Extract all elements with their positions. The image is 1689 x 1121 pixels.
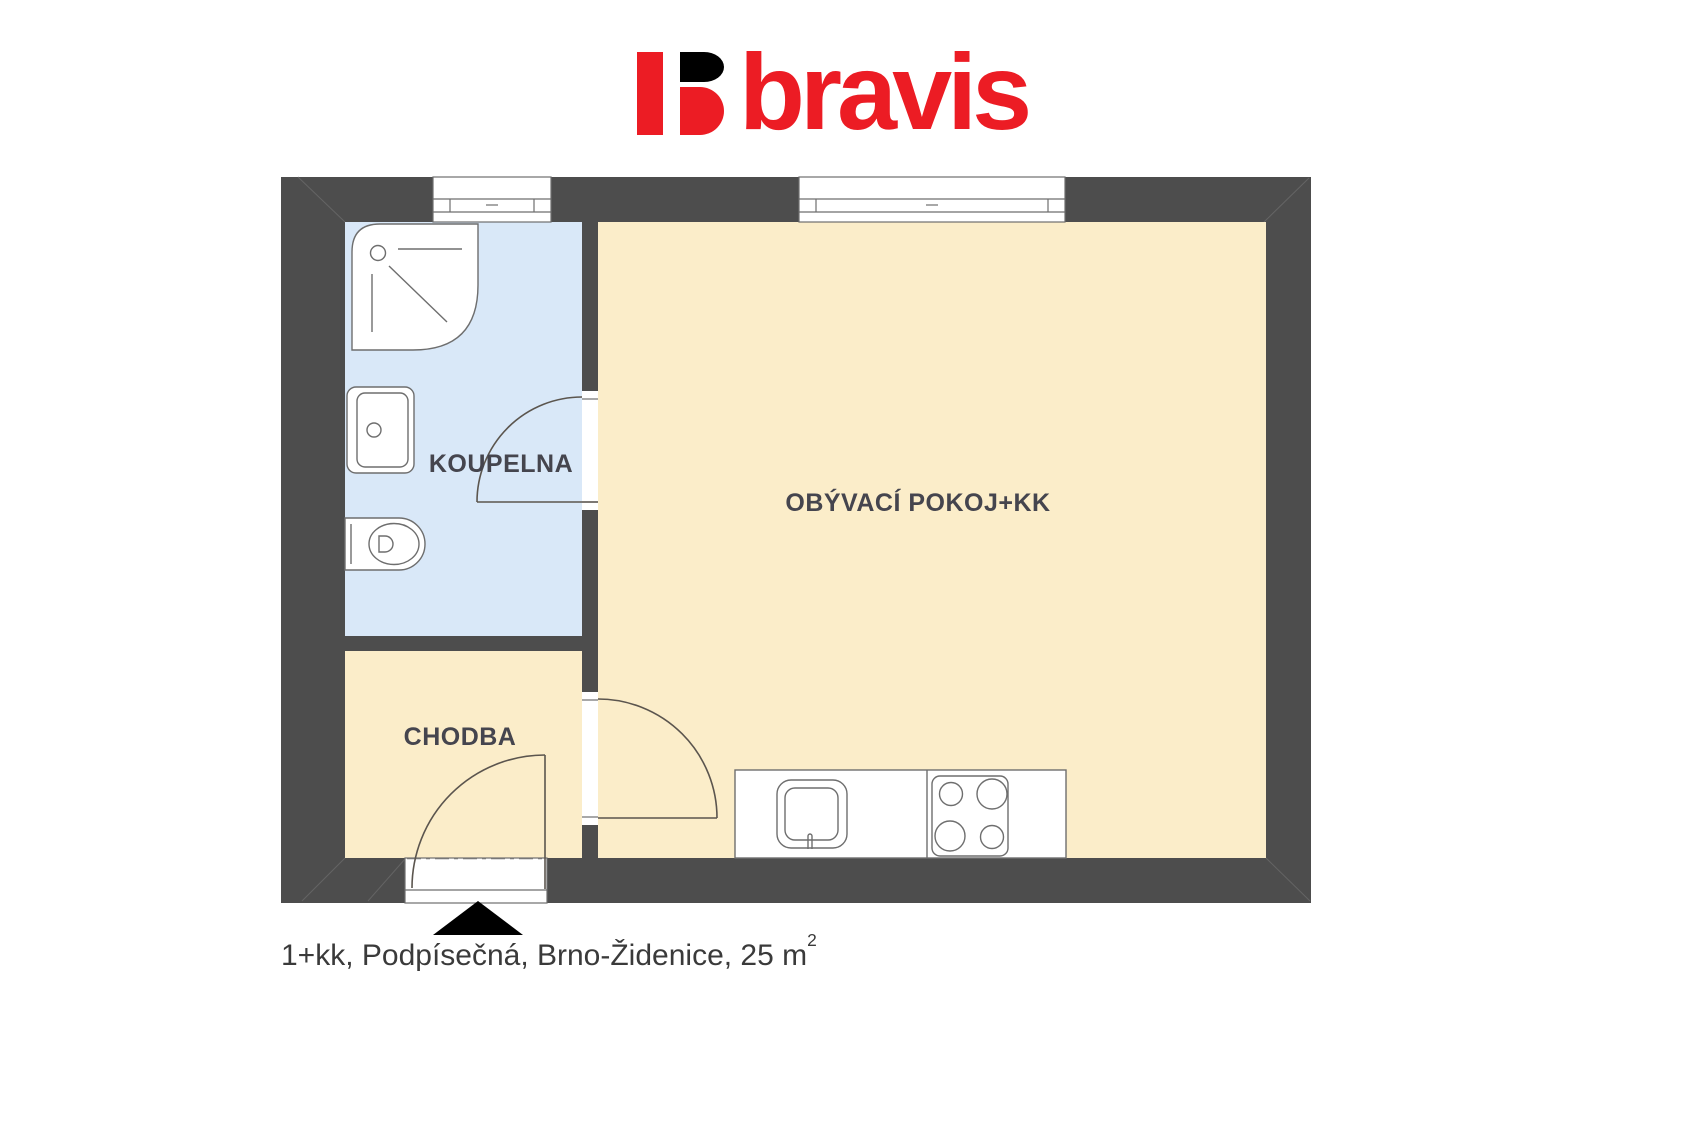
label-koupelna: KOUPELNA <box>429 450 573 478</box>
listing-caption-text: 1+kk, Podpísečná, Brno-Židenice, 25 m <box>281 939 807 972</box>
label-chodba: CHODBA <box>404 723 517 751</box>
label-obyvaci-pokoj: OBÝVACÍ POKOJ+KK <box>785 487 1050 517</box>
room-obyvaci-pokoj <box>598 222 1266 858</box>
shower-fixture <box>352 224 478 350</box>
listing-caption-superscript: 2 <box>807 930 817 950</box>
washbasin-fixture <box>347 387 414 473</box>
room-chodba <box>345 651 582 858</box>
entrance-arrow-icon <box>433 901 523 935</box>
listing-caption: 1+kk, Podpísečná, Brno-Židenice, 25 m2 <box>281 938 817 973</box>
window-bathroom <box>433 177 551 222</box>
kitchen-counter <box>735 770 1066 858</box>
toilet-fixture <box>345 518 425 570</box>
window-living-room <box>799 177 1065 222</box>
floor-plan: KOUPELNA CHODBA OBÝVACÍ POKOJ+KK <box>0 0 1689 1121</box>
